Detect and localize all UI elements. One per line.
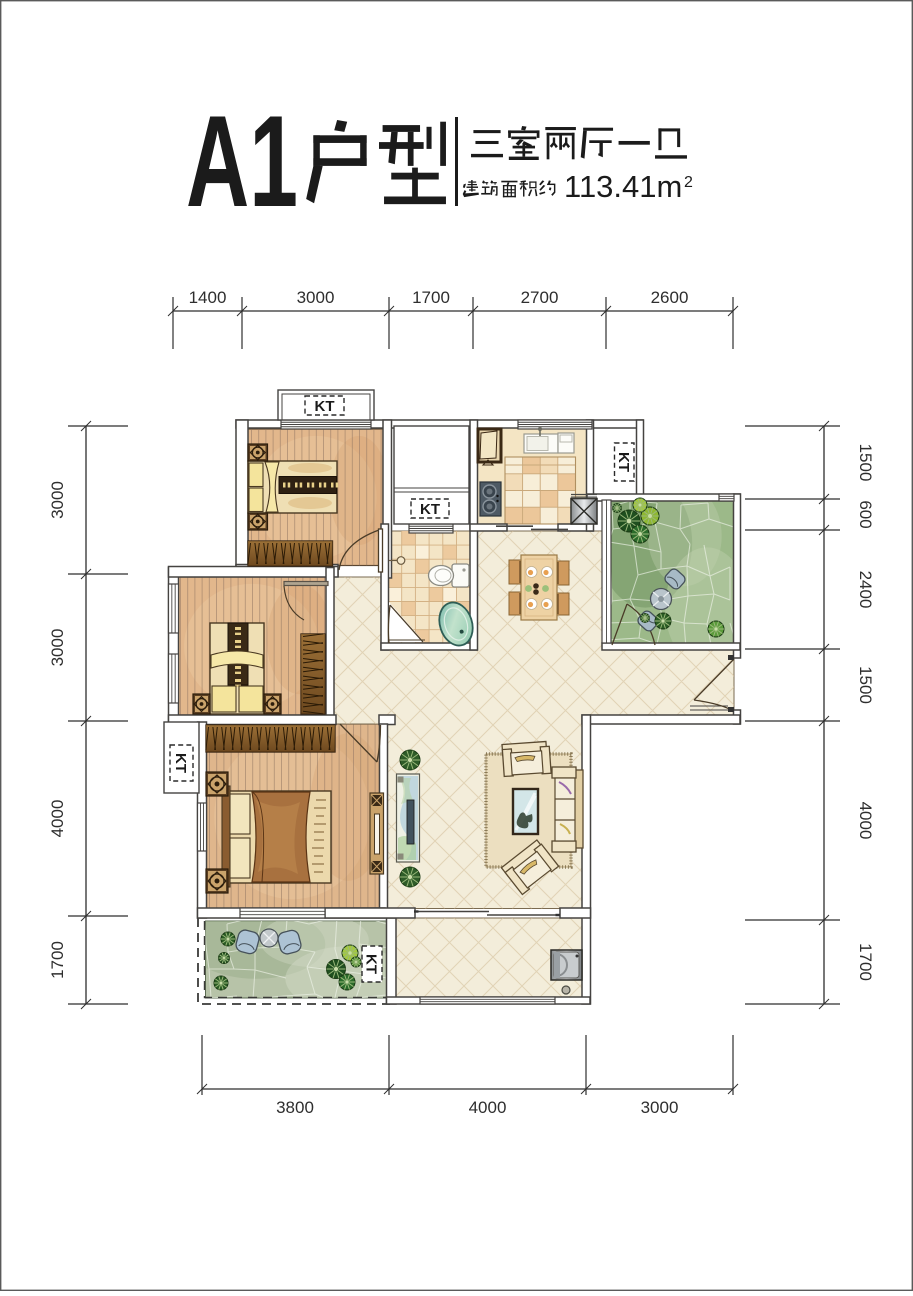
svg-text:2700: 2700 — [521, 288, 559, 307]
svg-text:113.41m: 113.41m — [564, 169, 682, 204]
svg-text:KT: KT — [615, 452, 632, 472]
svg-text:4000: 4000 — [856, 802, 875, 840]
svg-text:4000: 4000 — [48, 800, 67, 838]
svg-text:KT: KT — [172, 753, 189, 773]
svg-text:600: 600 — [856, 500, 875, 528]
svg-text:1700: 1700 — [856, 943, 875, 981]
svg-text:3000: 3000 — [641, 1098, 679, 1117]
svg-text:1500: 1500 — [856, 666, 875, 704]
svg-text:KT: KT — [315, 398, 335, 415]
svg-text:KT: KT — [420, 501, 440, 518]
svg-text:3000: 3000 — [48, 629, 67, 667]
svg-text:2600: 2600 — [651, 288, 689, 307]
svg-text:3800: 3800 — [276, 1098, 314, 1117]
svg-text:4000: 4000 — [469, 1098, 507, 1117]
svg-text:1700: 1700 — [412, 288, 450, 307]
svg-text:KT: KT — [363, 954, 380, 974]
svg-text:2400: 2400 — [856, 571, 875, 609]
svg-text:1500: 1500 — [856, 444, 875, 482]
svg-text:1700: 1700 — [48, 941, 67, 979]
svg-text:A1: A1 — [186, 88, 298, 234]
svg-text:1400: 1400 — [189, 288, 227, 307]
svg-text:3000: 3000 — [48, 481, 67, 519]
svg-text:2: 2 — [684, 174, 693, 191]
svg-text:3000: 3000 — [297, 288, 335, 307]
